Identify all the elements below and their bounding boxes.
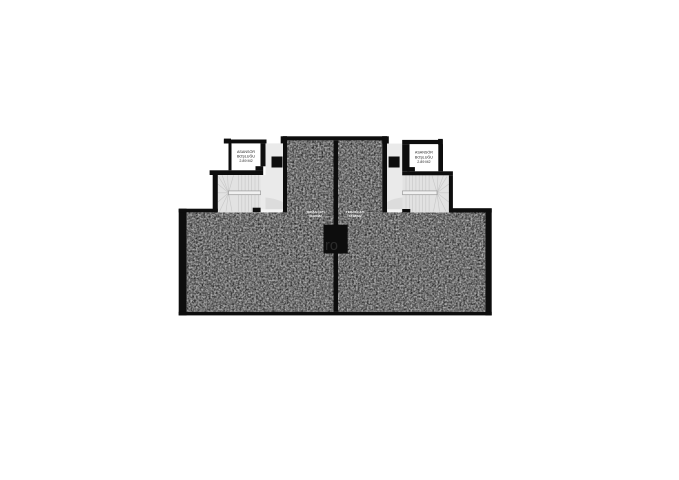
svg-text:2.89 M2: 2.89 M2 <box>417 160 430 164</box>
svg-text:ASANSÖR: ASANSÖR <box>237 150 255 154</box>
svg-text:33.98 M2: 33.98 M2 <box>309 214 322 218</box>
svg-text:BOŞLUĞU: BOŞLUĞU <box>237 154 255 159</box>
svg-text:2.89 M2: 2.89 M2 <box>239 159 252 163</box>
svg-text:33.98 M2: 33.98 M2 <box>349 214 362 218</box>
svg-text:ASANSÖR: ASANSÖR <box>415 151 433 155</box>
svg-text:BOŞLUĞU: BOŞLUĞU <box>415 154 433 159</box>
svg-text:ro: ro <box>325 238 338 254</box>
